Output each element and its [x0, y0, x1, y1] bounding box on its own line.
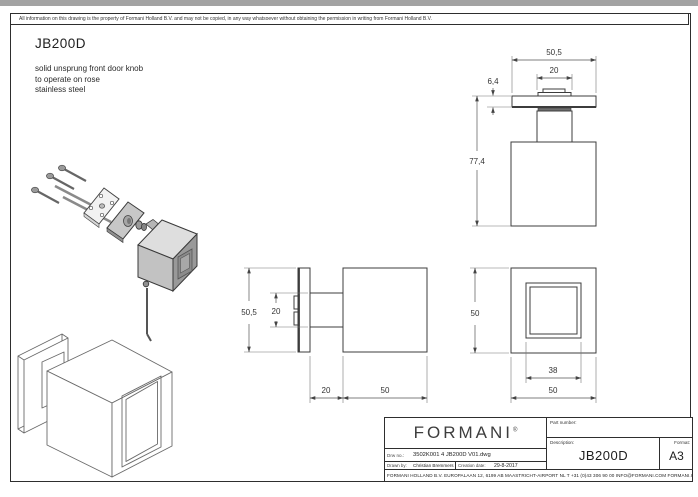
knob-cube [138, 220, 197, 291]
exploded-view [32, 165, 198, 341]
drawing-sheet-page: All information on this drawing is the p… [0, 0, 698, 497]
dim-projection: 20 [322, 386, 331, 395]
company-address: FORMANI HOLLAND B.V. EUROPALAAN 12, 6199… [385, 469, 692, 481]
assembled-wireframe-view [18, 334, 172, 477]
dim-knob-width: 50 [549, 386, 558, 395]
creation-date-value: 29-8-2017 [488, 463, 518, 469]
top-elevation-view [511, 89, 596, 226]
side-view [294, 268, 427, 352]
description-cell: Description: JB200D [546, 438, 659, 469]
dim-neck-width: 20 [550, 66, 559, 75]
drawn-by-row: Drawn by: Christian Bremmers Creation da… [385, 461, 546, 469]
dim-rose-height: 50,5 [241, 308, 257, 317]
dim-knob-height: 50 [471, 309, 480, 318]
front-view [511, 268, 596, 353]
grub-screw-pin [143, 281, 151, 341]
dim-rose-width: 50,5 [546, 48, 562, 57]
description-value: JB200D [547, 448, 660, 463]
brand-name: FORMANI [414, 423, 513, 442]
registered-mark: ® [513, 427, 517, 433]
title-block: FORMANI® Drw no.: 3502K001 4 JB200D V01.… [384, 417, 693, 482]
drawn-by-value: Christian Bremmers [413, 463, 455, 468]
drawn-by-label: Drawn by: [385, 463, 413, 468]
drw-no-label: Drw no.: [385, 453, 413, 458]
part-number-label: Part number: [550, 420, 577, 425]
dim-neck-height: 20 [272, 307, 281, 316]
dim-rose-thickness: 6,4 [487, 77, 499, 86]
format-label: Format: [674, 440, 690, 445]
drw-no-value: 3502K001 4 JB200D V01.dwg [413, 452, 491, 458]
format-value: A3 [660, 449, 693, 463]
part-number-cell: Part number: [546, 418, 692, 438]
dim-knob-depth: 50 [381, 386, 390, 395]
dim-inner-square: 38 [549, 366, 558, 375]
brand-logo: FORMANI® [385, 418, 546, 448]
format-cell: Format: A3 [659, 438, 692, 469]
drawing-number-row: Drw no.: 3502K001 4 JB200D V01.dwg [385, 448, 546, 461]
dim-total-height: 77,4 [469, 157, 485, 166]
description-label: Description: [550, 440, 574, 445]
